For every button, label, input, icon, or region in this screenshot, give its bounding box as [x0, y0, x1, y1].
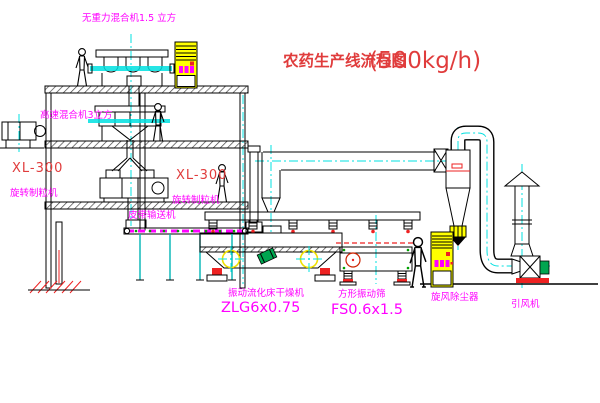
exhaust-stack — [505, 172, 539, 256]
label-cyclone: 旋风除尘器 — [431, 291, 479, 303]
foundation-hatch — [30, 281, 81, 293]
label-induced-fan: 引风机 — [511, 298, 540, 310]
cad-flow-diagram-canvas: 无重力混合机1.5 立方 农药生产线流程图 (500kg/h) 高速混合机3立方… — [0, 0, 600, 403]
label-high-speed-mixer: 高速混合机3立方 — [40, 109, 113, 121]
bucket-elevator — [246, 146, 262, 232]
label-mid-granulator-model: XL-300 — [176, 168, 227, 183]
control-cabinet-top — [175, 42, 197, 88]
label-belt-conveyor: 皮带输送机 — [128, 209, 176, 221]
label-gravity-free-mixer: 无重力混合机1.5 立方 — [82, 12, 176, 24]
fan-motor-icon — [540, 261, 549, 274]
page-title-capacity: (500kg/h) — [369, 48, 481, 74]
label-mid-granulator: 旋转制粒机 — [172, 194, 220, 206]
induced-draft-fan — [512, 256, 549, 283]
worker-figure — [76, 49, 88, 86]
label-left-granulator-model: XL-300 — [12, 161, 63, 176]
rotary-granulator-left — [0, 122, 46, 148]
control-cabinet-right — [431, 232, 453, 287]
process-flow-diagram: 无重力混合机1.5 立方 农药生产线流程图 (500kg/h) 高速混合机3立方… — [0, 0, 600, 403]
label-left-granulator: 旋转制粒机 — [10, 187, 58, 199]
label-square-sifter: 方形振动筛 — [338, 288, 386, 300]
label-fluid-bed-dryer-model: ZLG6x0.75 — [221, 300, 300, 316]
label-fluid-bed-dryer: 振动流化床干燥机 — [228, 287, 305, 299]
label-square-sifter-model: FS0.6x1.5 — [331, 302, 403, 318]
